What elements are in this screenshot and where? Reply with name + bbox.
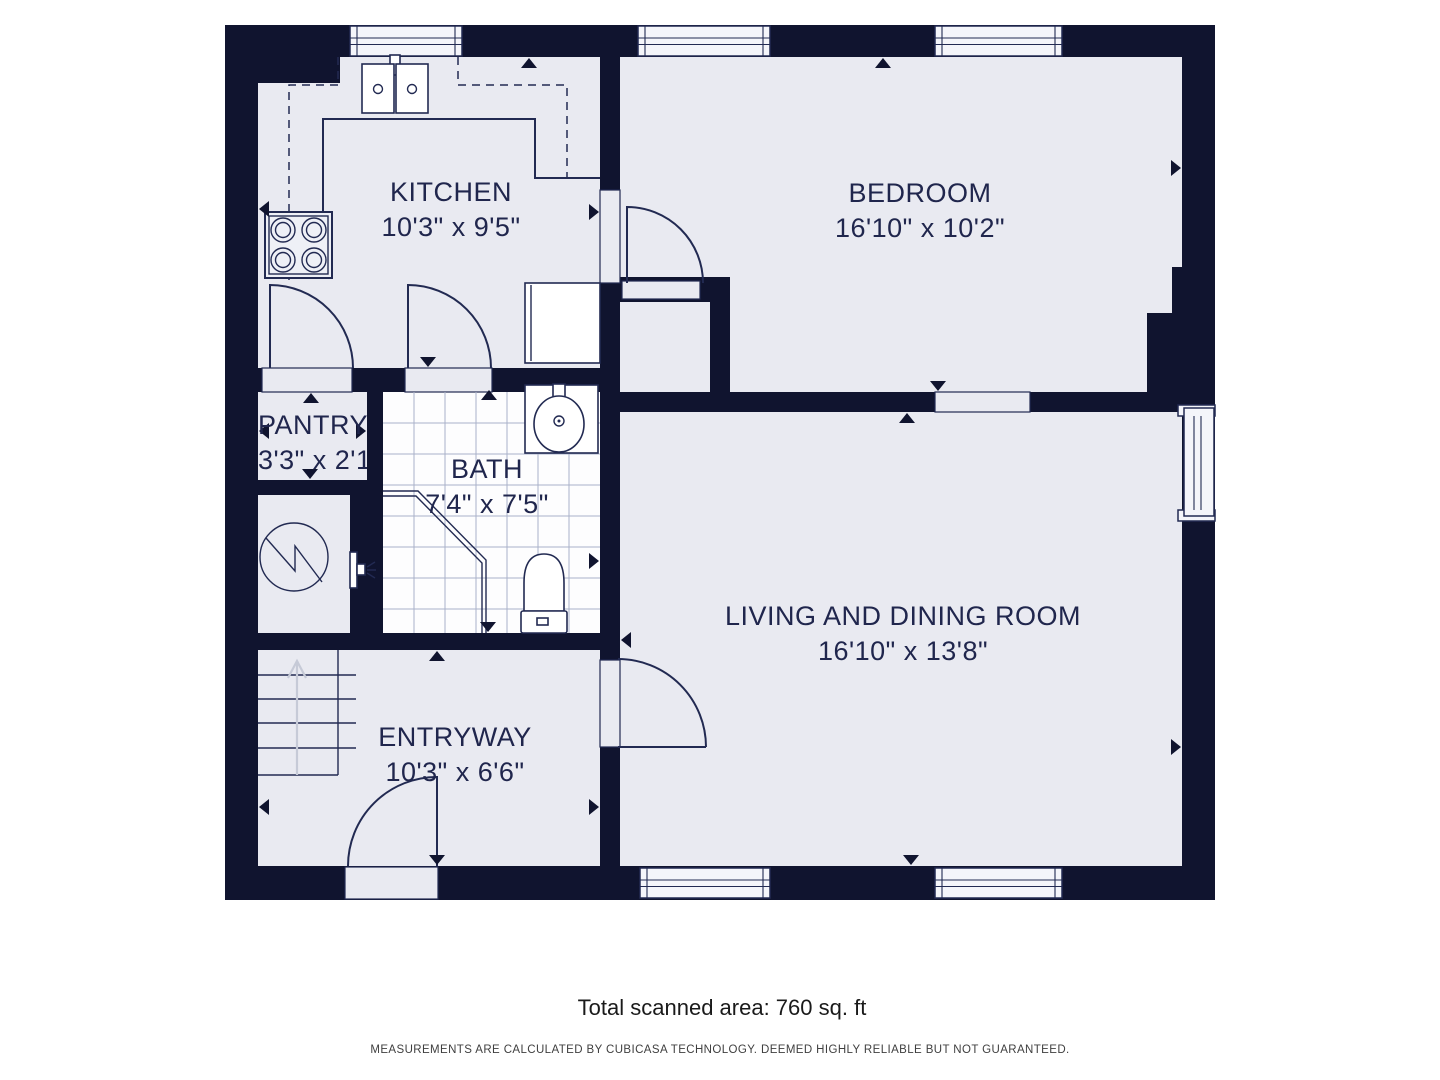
room-label-pantry-dims: 3'3" x 2'10": [258, 443, 367, 477]
room-label-bath: BATH 7'4" x 7'5": [425, 452, 549, 522]
room-dims: 10'3" x 6'6": [378, 755, 532, 790]
room-dims: 16'10" x 10'2": [835, 211, 1005, 246]
room-dims: 16'10" x 13'8": [725, 634, 1081, 669]
room-name: LIVING AND DINING ROOM: [725, 599, 1081, 634]
window-bedroom-top-right: [935, 26, 1062, 56]
room-name: BATH: [425, 452, 549, 487]
pantry-door-opening: [262, 368, 352, 392]
refrigerator-icon: [525, 283, 600, 363]
bedroom-door-opening: [600, 190, 620, 283]
living-door-opening: [600, 660, 620, 747]
bedroom-living-opening: [935, 392, 1030, 412]
room-label-living-dining: LIVING AND DINING ROOM 16'10" x 13'8": [725, 599, 1081, 669]
room-label-kitchen: KITCHEN 10'3" x 9'5": [381, 175, 520, 245]
total-scanned-area-text: Total scanned area: 760 sq. ft: [578, 995, 867, 1021]
window-living-right: [1178, 405, 1215, 521]
window-living-bottom-left: [640, 868, 770, 898]
bath-sink-icon: [525, 384, 598, 453]
floor-plan-drawing: [0, 0, 1440, 1080]
toilet-icon: [521, 554, 567, 633]
window-kitchen-top: [350, 26, 462, 56]
room-label-entryway: ENTRYWAY 10'3" x 6'6": [378, 720, 532, 790]
bath-door-opening: [405, 368, 492, 392]
closet-right-wall: [710, 277, 730, 392]
room-label-bedroom: BEDROOM 16'10" x 10'2": [835, 176, 1005, 246]
floor-plan-page: KITCHEN 10'3" x 9'5" BEDROOM 16'10" x 10…: [0, 0, 1440, 1080]
disclaimer-text: MEASUREMENTS ARE CALCULATED BY CUBICASA …: [370, 1044, 1069, 1056]
room-name: KITCHEN: [381, 175, 520, 210]
room-label-pantry-name: PANTRY: [258, 408, 367, 442]
utility-closet-floor: [258, 495, 350, 633]
window-bedroom-top-left: [638, 26, 770, 56]
wall-corner-bump: [225, 25, 340, 83]
room-dims: 7'4" x 7'5": [425, 487, 549, 522]
entry-exterior-door-opening: [345, 867, 438, 899]
bedroom-wall-step-2: [1147, 313, 1182, 392]
stove-icon: [265, 212, 332, 278]
window-living-bottom-right: [935, 868, 1062, 898]
closet-threshold: [622, 281, 700, 299]
room-name: BEDROOM: [835, 176, 1005, 211]
room-name: ENTRYWAY: [378, 720, 532, 755]
bedroom-wall-step-1: [1172, 267, 1182, 313]
room-dims: 10'3" x 9'5": [381, 210, 520, 245]
